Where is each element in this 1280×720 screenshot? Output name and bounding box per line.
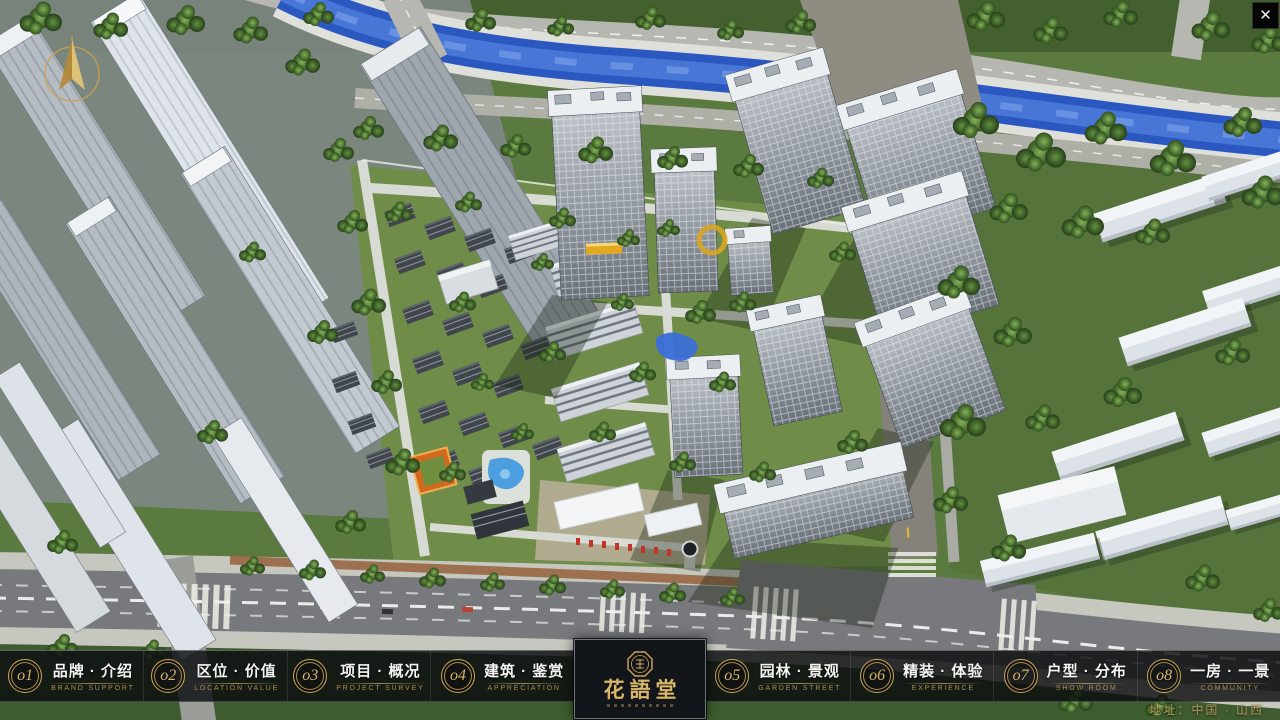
- gold-divider: [336, 683, 424, 684]
- gold-divider: [51, 683, 135, 684]
- menu-badge-6: o6: [860, 659, 894, 693]
- menu-item-text: 精装 · 体验 EXPERIENCE: [903, 660, 983, 692]
- brand-logo-panel[interactable]: 花語堂: [574, 639, 706, 719]
- menu-badge-2: o2: [151, 659, 185, 693]
- menu-item-subtitle: SHOW ROOM: [1056, 685, 1118, 692]
- menu-item-interior[interactable]: o6 精装 · 体验 EXPERIENCE: [850, 651, 994, 701]
- menu-item-subtitle: APPRECIATION: [488, 685, 561, 692]
- menu-badge-8: o8: [1147, 659, 1181, 693]
- menu-item-location[interactable]: o2 区位 · 价值 LOCATION VALUE: [143, 651, 287, 701]
- menu-item-text: 一房 · 一景 COMMUNITY: [1190, 660, 1270, 692]
- menu-item-text: 户型 · 分布 SHOW ROOM: [1047, 660, 1127, 692]
- menu-item-architecture[interactable]: o4 建筑 · 鉴赏 APPRECIATION: [430, 651, 574, 701]
- menu-item-text: 区位 · 价值 LOCATION VALUE: [194, 660, 279, 692]
- gold-divider: [903, 683, 983, 684]
- menu-item-title: 园林 · 景观: [760, 660, 840, 681]
- menu-badge-1: o1: [8, 659, 42, 693]
- menu-item-brand[interactable]: o1 品牌 · 介绍 BRAND SUPPORT: [0, 651, 143, 701]
- menu-item-views[interactable]: o8 一房 · 一景 COMMUNITY: [1137, 651, 1280, 701]
- menu-item-title: 品牌 · 介绍: [53, 660, 133, 681]
- menu-item-garden[interactable]: o5 园林 · 景观 GARDEN STREET: [706, 651, 850, 701]
- menu-item-text: 园林 · 景观 GARDEN STREET: [758, 660, 841, 692]
- gold-divider: [758, 683, 841, 684]
- menu-item-text: 建筑 · 鉴赏 APPRECIATION: [484, 660, 564, 692]
- menu-item-text: 品牌 · 介绍 BRAND SUPPORT: [51, 660, 135, 692]
- menu-item-floorplan[interactable]: o7 户型 · 分布 SHOW ROOM: [993, 651, 1137, 701]
- menu-item-subtitle: EXPERIENCE: [912, 685, 975, 692]
- close-button[interactable]: ✕: [1252, 2, 1279, 29]
- project-address: 地址：中国 · 山西: [1149, 701, 1264, 718]
- menu-item-text: 项目 · 概况 PROJECT SURVEY: [336, 660, 424, 692]
- menu-item-subtitle: PROJECT SURVEY: [336, 685, 424, 692]
- gold-divider: [1047, 683, 1127, 684]
- menu-item-title: 区位 · 价值: [196, 660, 276, 681]
- shuttle-bus: [586, 242, 622, 254]
- menu-item-subtitle: GARDEN STREET: [758, 685, 841, 692]
- menu-badge-3: o3: [293, 659, 327, 693]
- menu-item-title: 建筑 · 鉴赏: [484, 660, 564, 681]
- brand-title: 花語堂: [599, 680, 682, 701]
- menu-group-right: o5 园林 · 景观 GARDEN STREET o6 精装 · 体验 EXPE…: [706, 651, 1280, 701]
- menu-item-title: 项目 · 概况: [340, 660, 420, 681]
- menu-item-project[interactable]: o3 项目 · 概况 PROJECT SURVEY: [287, 651, 431, 701]
- menu-item-subtitle: BRAND SUPPORT: [51, 685, 135, 692]
- menu-group-left: o1 品牌 · 介绍 BRAND SUPPORT o2 区位 · 价值 LOCA…: [0, 651, 574, 701]
- gold-divider: [484, 683, 564, 684]
- menu-badge-4: o4: [441, 659, 475, 693]
- brand-seal-icon: [627, 651, 653, 677]
- brand-tagline-rule: [607, 704, 673, 707]
- bottom-menu-bar: o1 品牌 · 介绍 BRAND SUPPORT o2 区位 · 价值 LOCA…: [0, 650, 1280, 702]
- menu-badge-5: o5: [715, 659, 749, 693]
- menu-item-title: 精装 · 体验: [903, 660, 983, 681]
- menu-item-subtitle: LOCATION VALUE: [194, 685, 279, 692]
- compass-icon: [36, 28, 108, 108]
- menu-badge-7: o7: [1004, 659, 1038, 693]
- masterplan-render: [0, 0, 1280, 720]
- menu-item-title: 一房 · 一景: [1190, 660, 1270, 681]
- gold-divider: [194, 683, 279, 684]
- gold-divider: [1190, 683, 1270, 684]
- menu-item-subtitle: COMMUNITY: [1201, 685, 1260, 692]
- menu-item-title: 户型 · 分布: [1047, 660, 1127, 681]
